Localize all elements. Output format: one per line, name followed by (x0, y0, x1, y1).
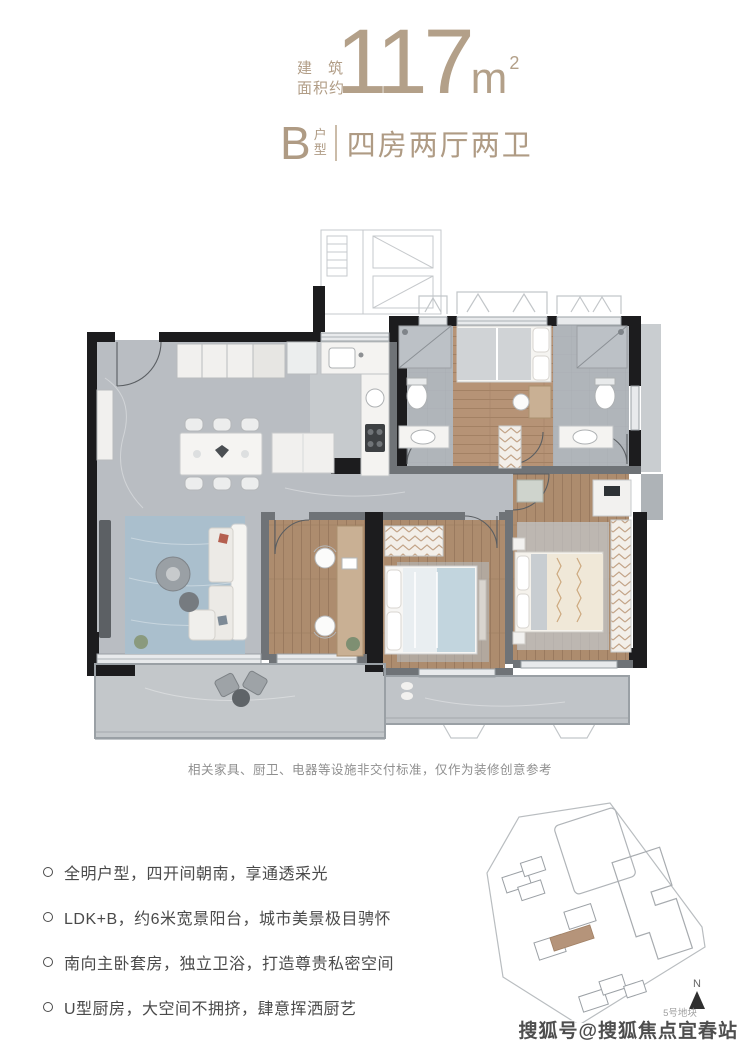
toilet-icon (595, 383, 615, 409)
tv-console-icon (99, 520, 111, 638)
side-balcony-floor (641, 324, 661, 472)
feature-item: 南向主卧套房，独立卫浴，打造尊贵私密空间 (43, 950, 394, 974)
bed-bench-icon (479, 580, 486, 640)
area-unit-exponent: 2 (509, 53, 519, 73)
dresser-icon (593, 480, 631, 516)
watermark-text: 搜狐号@搜狐焦点宜春站 (518, 1016, 738, 1043)
toilet-icon (407, 383, 427, 409)
area-value: 117 (336, 11, 471, 113)
divider-line (335, 125, 337, 161)
floorplan-svg (85, 228, 665, 748)
feature-list: 全明户型，四开间朝南，享通透采光 LDK+B，约6米宽景阳台，城市美景极目骋怀 … (43, 860, 394, 1040)
nightstand-icon (513, 632, 525, 644)
site-map-svg: N 5号地块 (475, 795, 735, 1023)
header: 建筑 面积约 117m2 B 户型 四房两厅两卫 (0, 0, 740, 180)
unit-code-suffix: 户型 (314, 128, 327, 158)
compass-label: N (693, 978, 701, 990)
feature-text: LDK+B，约6米宽景阳台，城市美景极目骋怀 (64, 905, 391, 929)
bullet-circle-icon (43, 957, 53, 967)
study-desk-icon (337, 526, 363, 656)
north-arrow-icon (689, 991, 705, 1009)
site-map: N 5号地块 (475, 795, 735, 1023)
bullet-circle-icon (43, 1002, 53, 1012)
site-boundary (487, 803, 705, 1023)
rear-balcony-floor (385, 676, 629, 724)
desk-chair-icon (315, 548, 335, 568)
feature-item: U型厨房，大空间不拥挤，肆意挥洒厨艺 (43, 995, 394, 1019)
disclaimer-caption: 相关家具、厨卫、电器等设施非交付标准，仅作为装修创意参考 (0, 759, 740, 778)
desk-chair-icon (513, 394, 529, 410)
fridge-icon (287, 342, 317, 374)
plant-icon (134, 635, 148, 649)
bullet-circle-icon (43, 912, 53, 922)
stair-lobby (321, 230, 441, 314)
desk-icon (529, 386, 551, 418)
desk-chair-icon (315, 616, 335, 636)
area-unit: m (471, 54, 508, 103)
floorplan-drawing (85, 228, 665, 748)
floorplan-poster: 建筑 面积约 117m2 B 户型 四房两厅两卫 (0, 0, 740, 1046)
feature-text: 全明户型，四开间朝南，享通透采光 (64, 860, 328, 884)
wardrobe-icon (611, 520, 631, 652)
patio-table-icon (232, 689, 250, 707)
bullet-circle-icon (43, 867, 53, 877)
stove-icon (365, 424, 385, 452)
round-sink-icon (366, 389, 384, 407)
kitchen-sink-icon (329, 348, 355, 368)
area-number: 117m2 (336, 16, 517, 108)
feature-item: LDK+B，约6米宽景阳台，城市美景极目骋怀 (43, 905, 394, 929)
feature-text: U型厨房，大空间不拥挤，肆意挥洒厨艺 (64, 995, 357, 1019)
bench-icon (517, 480, 543, 502)
layout-title: 四房两厅两卫 (347, 122, 533, 164)
unit-code: B (280, 120, 311, 166)
wardrobe-icon (499, 426, 521, 468)
plant-icon (346, 637, 360, 651)
feature-item: 全明户型，四开间朝南，享通透采光 (43, 860, 394, 884)
wardrobe-icon (385, 526, 443, 556)
nightstand-icon (513, 538, 525, 550)
feature-text: 南向主卧套房，独立卫浴，打造尊贵私密空间 (64, 950, 394, 974)
ottoman-icon (189, 610, 215, 640)
unit-subtitle: B 户型 四房两厅两卫 (280, 120, 533, 166)
